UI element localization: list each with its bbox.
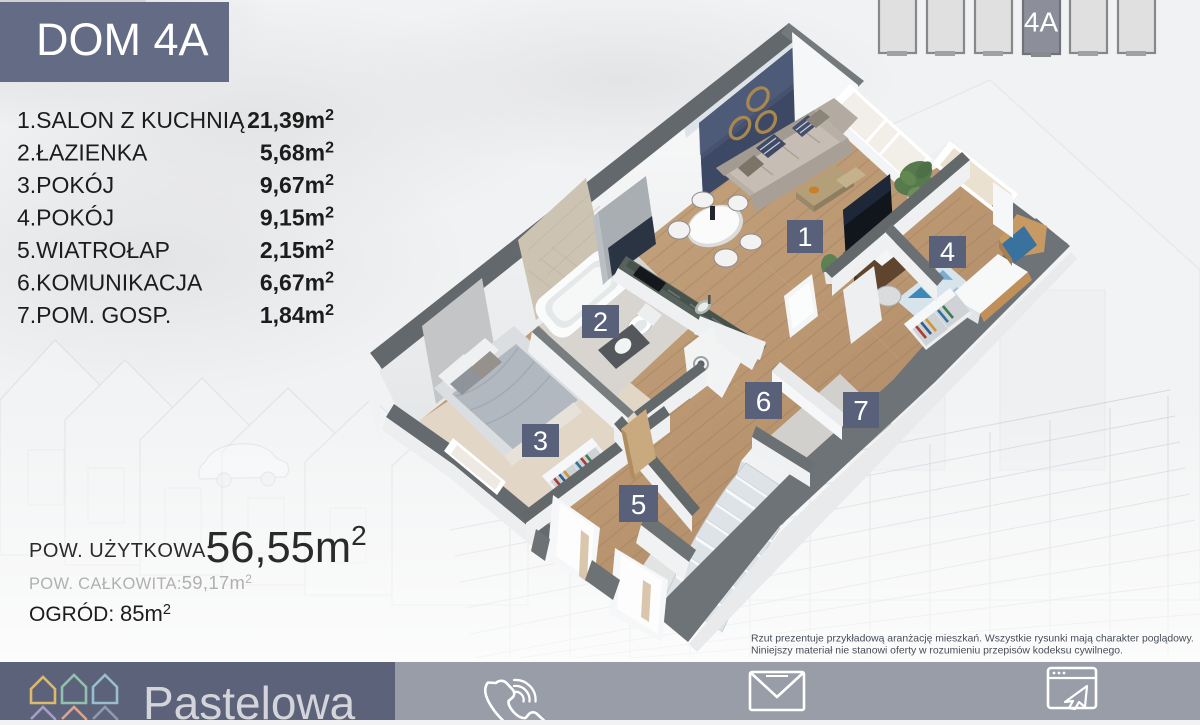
svg-text:5: 5 [631, 489, 647, 520]
svg-text:7.POM. GOSP.: 7.POM. GOSP. [17, 302, 171, 328]
svg-text:POW. UŻYTKOWA:: POW. UŻYTKOWA: [29, 539, 212, 562]
svg-text:2,15m2: 2,15m2 [260, 237, 334, 263]
svg-text:6,67m2: 6,67m2 [260, 270, 334, 296]
svg-text:3: 3 [533, 426, 548, 456]
svg-text:Pastelowa: Pastelowa [143, 677, 356, 720]
svg-text:9,15m2: 9,15m2 [260, 205, 334, 231]
svg-text:Niniejszy materiał nie stanowi: Niniejszy materiał nie stanowi oferty w … [751, 646, 1123, 657]
svg-text:6: 6 [756, 386, 772, 417]
svg-text:2: 2 [593, 307, 608, 337]
svg-text:4: 4 [940, 237, 955, 267]
svg-text:1: 1 [797, 222, 812, 252]
svg-text:21,39m2: 21,39m2 [247, 107, 334, 133]
svg-text:5,68m2: 5,68m2 [260, 140, 334, 166]
svg-text:DOM 4A: DOM 4A [36, 14, 209, 65]
svg-text:Rzut prezentuje przykładową ar: Rzut prezentuje przykładową aranżację mi… [751, 634, 1194, 645]
svg-text:5.WIATROŁAP: 5.WIATROŁAP [17, 237, 170, 263]
svg-text:POW. CAŁKOWITA:59,17m2: POW. CAŁKOWITA:59,17m2 [29, 572, 252, 593]
svg-text:OGRÓD: 85m2: OGRÓD: 85m2 [29, 601, 171, 626]
svg-text:9,67m2: 9,67m2 [260, 172, 334, 198]
svg-text:7: 7 [853, 395, 869, 426]
svg-text:4A: 4A [1024, 7, 1059, 38]
svg-text:56,55m2: 56,55m2 [206, 520, 367, 572]
svg-text:3.POKÓJ: 3.POKÓJ [17, 172, 114, 198]
svg-text:1.SALON Z KUCHNIĄ: 1.SALON Z KUCHNIĄ [17, 107, 245, 133]
svg-text:6.KOMUNIKACJA: 6.KOMUNIKACJA [17, 270, 203, 296]
svg-text:2.ŁAZIENKA: 2.ŁAZIENKA [17, 140, 148, 166]
svg-text:4.POKÓJ: 4.POKÓJ [17, 205, 114, 231]
svg-text:1,84m2: 1,84m2 [260, 302, 334, 328]
